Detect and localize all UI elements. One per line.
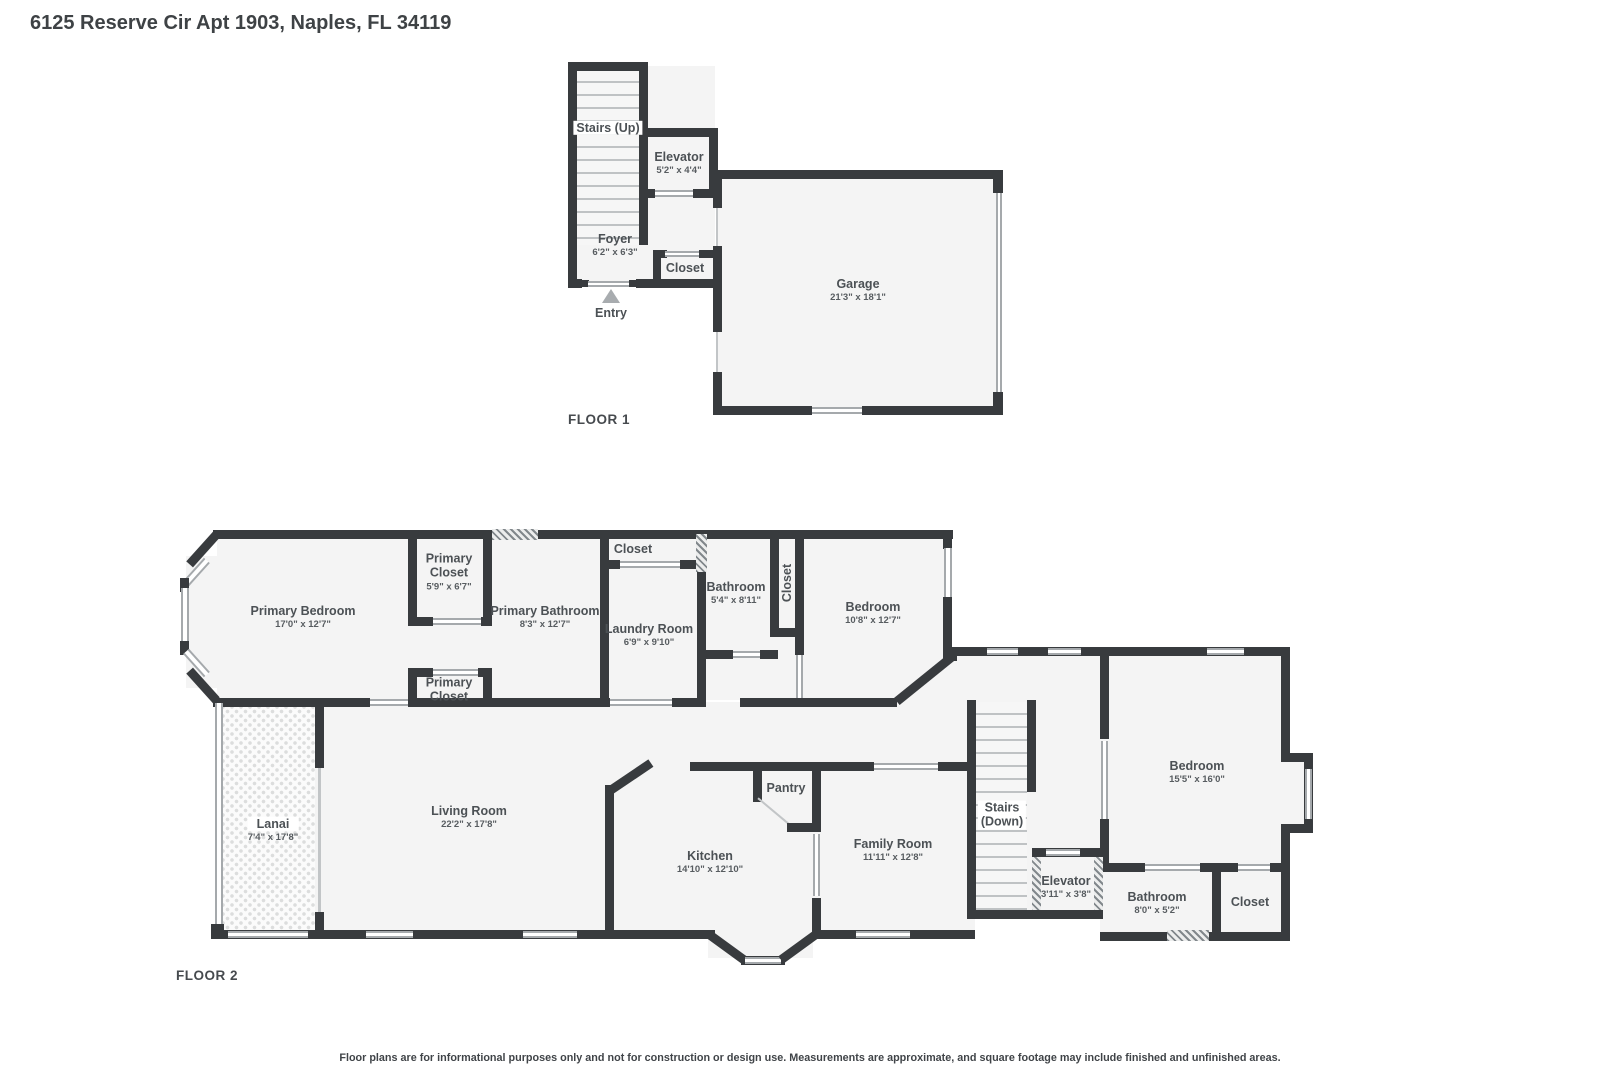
room-name: Primary Closet	[417, 676, 481, 705]
sliding-door	[318, 768, 321, 913]
room-label-stairs-down: Stairs (Down)	[978, 801, 1026, 830]
bay-window	[181, 588, 189, 646]
wall	[211, 924, 224, 939]
wall	[713, 406, 812, 415]
room-dims: 6'9" x 9'10"	[605, 637, 693, 648]
wall	[568, 62, 577, 288]
hatched-wall	[696, 534, 707, 572]
room-dims: 11'11" x 12'8"	[854, 852, 933, 863]
door-opening	[610, 699, 672, 706]
wall	[943, 530, 952, 549]
wall	[740, 698, 897, 707]
room-name: Primary Bathroom	[490, 604, 599, 618]
entry-label: Entry	[595, 306, 627, 320]
room-name: Closet	[614, 542, 652, 556]
wall	[993, 170, 1003, 193]
bathroom-door	[733, 651, 760, 658]
room-name: Closet	[666, 261, 704, 275]
room-label-elevator-f2: Elevator 3'11" x 3'8"	[1041, 874, 1091, 900]
wall	[713, 170, 1003, 179]
bay-window	[745, 957, 781, 964]
door-opening	[813, 834, 820, 896]
wall	[770, 530, 779, 632]
wall	[483, 668, 492, 707]
door-opening	[716, 208, 718, 246]
room-label-family-room: Family Room 11'11" x 12'8"	[854, 837, 933, 863]
room-label-elevator-f1: Elevator 5'2" x 4'4"	[654, 150, 703, 176]
wall	[713, 170, 722, 208]
wall	[408, 530, 417, 626]
wall	[568, 62, 648, 71]
room-name: Foyer	[592, 232, 637, 246]
wall	[639, 62, 648, 245]
page-title: 6125 Reserve Cir Apt 1903, Naples, FL 34…	[30, 12, 451, 35]
room-name: Closet	[1231, 895, 1269, 909]
window	[987, 648, 1018, 655]
room-dims: 10'8" x 12'7"	[845, 615, 901, 626]
room-label-primary-closet-upper: Primary Closet 5'9" x 6'7"	[417, 552, 481, 593]
window	[1048, 648, 1081, 655]
wall	[213, 530, 953, 539]
window	[1305, 769, 1312, 819]
room-dims: 6'2" x 6'3"	[592, 247, 637, 258]
room-dims: 14'10" x 12'10"	[677, 864, 743, 875]
room-label-bedroom-mid: Bedroom 10'8" x 12'7"	[845, 600, 901, 626]
wall	[639, 128, 718, 137]
wall	[938, 762, 973, 771]
room-name: Stairs	[978, 801, 1026, 815]
hatched-wall	[492, 529, 538, 540]
wall	[795, 530, 804, 655]
elevator-door	[1046, 849, 1080, 856]
entry-arrow-icon	[602, 289, 620, 303]
room-label-foyer: Foyer 6'2" x 6'3"	[592, 232, 637, 258]
window	[812, 407, 862, 414]
window	[1207, 648, 1244, 655]
lanai-screen	[215, 703, 223, 931]
wall	[636, 279, 719, 288]
wall	[1281, 824, 1290, 941]
window	[366, 931, 413, 938]
wall	[1281, 647, 1290, 759]
wall	[315, 702, 324, 768]
garage-door	[996, 192, 1002, 393]
room-name: Family Room	[854, 837, 933, 851]
room-name: Bedroom	[1169, 759, 1225, 773]
room-dims: 5'2" x 4'4"	[654, 165, 703, 176]
closet-door	[1238, 864, 1270, 871]
room-label-pantry: Pantry	[767, 781, 806, 795]
wall	[639, 189, 655, 198]
entry-door	[588, 281, 629, 287]
closet-door	[620, 561, 680, 568]
room-name: Laundry Room	[605, 622, 693, 636]
room-name: Bathroom	[706, 580, 765, 594]
room-name: Lanai	[248, 817, 299, 831]
wall	[862, 406, 1003, 415]
wall	[1032, 910, 1103, 919]
wall	[1270, 863, 1290, 872]
wall	[672, 698, 697, 707]
room-name: Closet	[780, 564, 794, 602]
window	[856, 931, 910, 938]
room-dims: 5'4" x 8'11"	[706, 595, 765, 606]
room-name: Bedroom	[845, 600, 901, 614]
wall	[690, 762, 874, 771]
wall	[408, 617, 433, 626]
window	[523, 931, 577, 938]
room-name: Elevator	[1041, 874, 1091, 888]
room-dims: 5'9" x 6'7"	[417, 581, 481, 592]
wall	[760, 650, 778, 659]
room-dims: 22'2" x 17'8"	[431, 819, 507, 830]
closet-door	[433, 618, 481, 625]
wall	[967, 700, 976, 919]
room-dims: 7'4" x 17'8"	[248, 832, 299, 843]
window	[944, 548, 952, 598]
room-label-bedroom-right: Bedroom 15'5" x 16'0"	[1169, 759, 1225, 785]
floor2-label: FLOOR 2	[176, 968, 238, 983]
room-name: Kitchen	[677, 849, 743, 863]
door-opening	[1101, 741, 1108, 819]
room-label-stairs-up: Stairs (Up)	[573, 121, 642, 135]
elevator-door	[655, 190, 693, 197]
wall	[653, 250, 661, 288]
room-label-living-room: Living Room 22'2" x 17'8"	[431, 804, 507, 830]
wall	[1212, 863, 1221, 941]
wall	[605, 785, 614, 935]
room-name: Entry	[595, 306, 627, 320]
wall	[600, 530, 609, 707]
room-name: Primary Bedroom	[251, 604, 356, 618]
room-name: Bathroom	[1127, 890, 1186, 904]
floor-plan-canvas: 6125 Reserve Cir Apt 1903, Naples, FL 34…	[0, 0, 1620, 1080]
door-opening	[370, 699, 408, 706]
wall	[753, 762, 762, 802]
room-name: Garage	[830, 277, 886, 291]
room-dims: 8'3" x 12'7"	[490, 619, 599, 630]
room-name: Stairs (Up)	[573, 121, 642, 135]
room-name: Pantry	[767, 781, 806, 795]
room-label-closet-vertical: Closet	[780, 564, 794, 602]
room-label-closet-top: Closet	[614, 542, 652, 556]
room-label-lanai: Lanai 7'4" x 17'8"	[248, 817, 299, 843]
stair-treads	[577, 70, 639, 245]
room-name: Living Room	[431, 804, 507, 818]
room-name: Elevator	[654, 150, 703, 164]
wall	[713, 246, 722, 332]
wall	[1100, 647, 1109, 739]
wall	[213, 698, 370, 707]
room-label-closet-right: Closet	[1231, 895, 1269, 909]
wall	[603, 560, 620, 569]
room-label-primary-bathroom: Primary Bathroom 8'3" x 12'7"	[490, 604, 599, 630]
room-name-line2: (Down)	[978, 815, 1026, 829]
room-label-garage: Garage 21'3" x 18'1"	[830, 277, 886, 303]
room-label-primary-bedroom: Primary Bedroom 17'0" x 12'7"	[251, 604, 356, 630]
room-dims: 15'5" x 16'0"	[1169, 774, 1225, 785]
floor1-label: FLOOR 1	[568, 412, 630, 427]
lanai-screen	[228, 931, 308, 938]
room-dims: 17'0" x 12'7"	[251, 619, 356, 630]
wall	[697, 650, 733, 659]
wall	[812, 762, 821, 832]
room-label-primary-closet-lower: Primary Closet	[417, 676, 481, 705]
disclaimer-text: Floor plans are for informational purpos…	[339, 1052, 1280, 1064]
wall	[605, 930, 715, 939]
room-dims: 3'11" x 3'8"	[1041, 889, 1091, 900]
wall	[1100, 863, 1145, 872]
wall	[967, 910, 1036, 919]
hatched-wall	[1167, 930, 1209, 941]
room-dims: 21'3" x 18'1"	[830, 292, 886, 303]
room-label-bathroom-small: Bathroom 5'4" x 8'11"	[706, 580, 765, 606]
wall	[787, 823, 814, 832]
door-opening	[796, 655, 803, 698]
closet-door	[665, 251, 701, 257]
wall	[1027, 700, 1036, 792]
room-label-bathroom-right: Bathroom 8'0" x 5'2"	[1127, 890, 1186, 916]
room-label-closet-f1: Closet	[666, 261, 704, 275]
bathroom-door	[1145, 864, 1200, 871]
room-name: Primary Closet	[417, 552, 481, 581]
room-label-laundry: Laundry Room 6'9" x 9'10"	[605, 622, 693, 648]
kitchen-family-fill	[613, 702, 975, 933]
room-dims: 8'0" x 5'2"	[1127, 905, 1186, 916]
wall	[993, 392, 1003, 415]
room-label-kitchen: Kitchen 14'10" x 12'10"	[677, 849, 743, 875]
door-opening	[716, 332, 718, 372]
door-opening	[874, 763, 938, 770]
